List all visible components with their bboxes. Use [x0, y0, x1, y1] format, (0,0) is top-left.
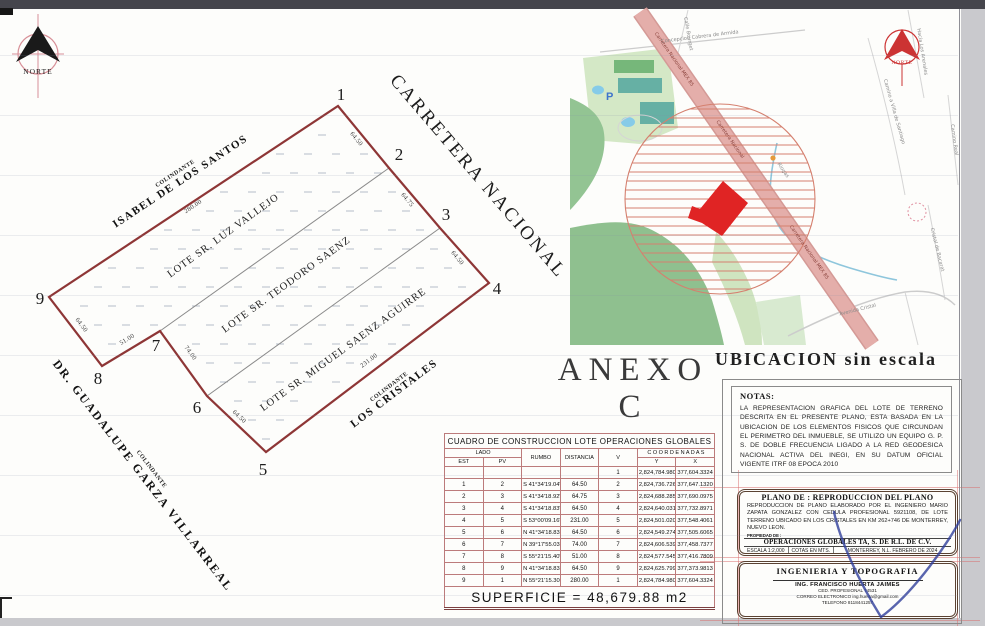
- table-cell-y: 2,824,625.7998: [637, 563, 676, 575]
- vertex-label: 7: [152, 336, 161, 355]
- table-cell-y: 2,824,784.9800: [637, 467, 676, 479]
- table-row: 91N 55°21'15.30" E280.0012,824,784.98003…: [445, 575, 715, 587]
- vertex-label: 4: [493, 279, 502, 298]
- north-label: NORTE: [891, 60, 912, 66]
- table-cell-rumbo: S 55°21'15.40" W: [522, 551, 561, 563]
- table-cell-est: 8: [445, 563, 484, 575]
- table-cell-x: 377,458.7377: [676, 539, 715, 551]
- col-rumbo: RUMBO: [522, 449, 561, 467]
- plan-scale: ESCALA 1:2,000: [744, 547, 788, 554]
- table-cell-pv: 2: [483, 479, 522, 491]
- vertex-label: 5: [259, 460, 268, 479]
- table-cell-v: 8: [599, 551, 638, 563]
- table-cell-est: 9: [445, 575, 484, 587]
- col-pv: PV: [483, 458, 522, 467]
- map-green-area: [570, 222, 724, 345]
- construction-table: CUADRO DE CONSTRUCCION LOTE OPERACIONES …: [444, 433, 715, 610]
- plan-description: REPRODUCCION DE PLANO ELABORADO POR EL I…: [740, 502, 955, 532]
- table-cell-pv: 8: [483, 551, 522, 563]
- map-north-arrow: NORTE: [884, 29, 920, 86]
- engineer-block: INGENIERIA Y TOPOGRAFIA ING. FRANCISCO H…: [737, 561, 958, 619]
- table-cell-pv: [483, 467, 522, 479]
- table-cell-v: 1: [599, 467, 638, 479]
- table-row: 12S 41°34'19.04" E64.5022,824,736.726137…: [445, 479, 715, 491]
- table-row: 89N 41°34'18.83" W64.5092,824,625.799837…: [445, 563, 715, 575]
- table-cell-y: 2,824,606.5393: [637, 539, 676, 551]
- table-cell-rumbo: N 39°17'55.03" W: [522, 539, 561, 551]
- table-cell-est: [445, 467, 484, 479]
- vertex-label: 9: [36, 289, 45, 308]
- north-label: NORTE: [23, 67, 53, 76]
- street-label: Cristal de Bacarat: [929, 227, 946, 272]
- table-cell-v: 4: [599, 503, 638, 515]
- table-cell-rumbo: S 41°34'18.92" E: [522, 491, 561, 503]
- location-map: P Concepcion Cabrera: [570, 10, 959, 345]
- table-row: 12,824,784.9800377,604.3324: [445, 467, 715, 479]
- vertex-label: 1: [337, 85, 346, 104]
- map-pool: [621, 117, 635, 127]
- map-creek: [770, 143, 897, 280]
- table-cell-x: 377,690.0975: [676, 491, 715, 503]
- table-cell-v: 3: [599, 491, 638, 503]
- table-cell-rumbo: N 41°34'18.83" W: [522, 563, 561, 575]
- col-distancia: DISTANCIA: [560, 449, 599, 467]
- table-row: 78S 55°21'15.40" W51.0082,824,577.545837…: [445, 551, 715, 563]
- table-cell-pv: 7: [483, 539, 522, 551]
- scanned-survey-sheet: P Concepcion Cabrera: [0, 0, 985, 626]
- map-street: [905, 292, 918, 345]
- table-row: 34S 41°34'18.83" E64.5042,824,640.031137…: [445, 503, 715, 515]
- table-cell-x: 377,604.3324: [676, 575, 715, 587]
- table-cell-dist: 64.50: [560, 527, 599, 539]
- table-row: 45S 53°00'09.16" W231.0052,824,501.02003…: [445, 515, 715, 527]
- table-cell-dist: 64.75: [560, 491, 599, 503]
- table-cell-dist: 64.50: [560, 563, 599, 575]
- map-court: [640, 102, 674, 124]
- map-avenue: [788, 291, 955, 336]
- parking-icon: P: [606, 91, 613, 103]
- table-cell-dist: 280.00: [560, 575, 599, 587]
- table-cell-v: 9: [599, 563, 638, 575]
- col-lado: LADO: [445, 449, 522, 458]
- table-cell-y: 2,824,688.2851: [637, 491, 676, 503]
- table-cell-rumbo: S 41°34'19.04" E: [522, 479, 561, 491]
- table-cell-dist: 74.00: [560, 539, 599, 551]
- engineer-block-title: INGENIERIA Y TOPOGRAFIA: [740, 566, 955, 576]
- construction-table-wrap: CUADRO DE CONSTRUCCION LOTE OPERACIONES …: [444, 433, 715, 610]
- street-label: Calle Bourget: [682, 17, 694, 51]
- plan-units: COTAS EN MTS.: [788, 547, 834, 554]
- map-court: [614, 60, 654, 73]
- table-title: CUADRO DE CONSTRUCCION LOTE OPERACIONES …: [445, 434, 715, 449]
- table-cell-y: 2,824,640.0311: [637, 503, 676, 515]
- signature-line: [773, 580, 923, 581]
- plan-title: PLANO DE : REPRODUCCION DEL PLANO: [740, 493, 955, 502]
- col-est: EST: [445, 458, 484, 467]
- map-green-area: [756, 295, 806, 345]
- plan-title-block: PLANO DE : REPRODUCCION DEL PLANO REPROD…: [737, 489, 958, 556]
- table-cell-v: 1: [599, 575, 638, 587]
- table-cell-x: 377,548.4061: [676, 515, 715, 527]
- table-cell-pv: 6: [483, 527, 522, 539]
- table-cell-x: 377,647.1320: [676, 479, 715, 491]
- table-cell-y: 2,824,501.0200: [637, 515, 676, 527]
- vertex-label: 2: [395, 145, 404, 164]
- street-label: Camino Real: [949, 124, 959, 156]
- table-cell-pv: 9: [483, 563, 522, 575]
- engineer-phone: TELEFONO 8118441257: [740, 600, 955, 606]
- table-cell-dist: [560, 467, 599, 479]
- street-label: Hacia Los Arenales: [915, 28, 928, 76]
- plan-meta-row: ESCALA 1:2,000 COTAS EN MTS. MONTERREY, …: [744, 547, 951, 554]
- table-cell-dist: 51.00: [560, 551, 599, 563]
- table-cell-v: 5: [599, 515, 638, 527]
- table-cell-est: 1: [445, 479, 484, 491]
- col-coordenadas: C O O R D E N A D A S: [637, 449, 714, 458]
- plan-owner: OPERACIONES GLOBALES TA, S. DE R.L. DE C…: [744, 538, 951, 547]
- notes-title: NOTAS:: [740, 391, 943, 401]
- table-cell-y: 2,824,784.9800: [637, 575, 676, 587]
- table-cell-est: 4: [445, 515, 484, 527]
- table-cell-rumbo: S 53°00'09.16" W: [522, 515, 561, 527]
- map-court: [618, 78, 662, 93]
- table-cell-pv: 1: [483, 575, 522, 587]
- col-y: Y: [637, 458, 676, 467]
- table-cell-y: 2,824,549.2740: [637, 527, 676, 539]
- table-row: 67N 39°17'55.03" W74.0072,824,606.539337…: [445, 539, 715, 551]
- table-cell-est: 7: [445, 551, 484, 563]
- map-dashed-parcel: [908, 203, 926, 221]
- col-v: V: [599, 449, 638, 467]
- table-cell-pv: 4: [483, 503, 522, 515]
- map-caption: UBICACION sin escala: [700, 349, 952, 370]
- table-cell-pv: 3: [483, 491, 522, 503]
- construction-table-body: 12,824,784.9800377,604.332412S 41°34'19.…: [445, 467, 715, 587]
- table-cell-pv: 5: [483, 515, 522, 527]
- table-cell-x: 377,416.7809: [676, 551, 715, 563]
- table-cell-est: 5: [445, 527, 484, 539]
- table-cell-rumbo: N 55°21'15.30" E: [522, 575, 561, 587]
- plan-place-date: MONTERREY, N.L. FEBRERO DE 2024: [833, 547, 951, 554]
- superficie-total: SUPERFICIE = 48,679.88 m2: [445, 587, 715, 609]
- table-cell-rumbo: N 41°34'18.83" W: [522, 527, 561, 539]
- street-label: Riogas: [776, 162, 791, 179]
- table-cell-est: 3: [445, 503, 484, 515]
- map-pool: [592, 86, 604, 95]
- table-row: 56N 41°34'18.83" W64.5062,824,549.274037…: [445, 527, 715, 539]
- table-cell-v: 7: [599, 539, 638, 551]
- vertex-label: 6: [193, 398, 202, 417]
- table-cell-est: 6: [445, 539, 484, 551]
- map-subject-lot: [688, 181, 748, 236]
- table-cell-x: 377,505.6065: [676, 527, 715, 539]
- table-cell-x: 377,373.9813: [676, 563, 715, 575]
- vertex-label: 8: [94, 369, 103, 388]
- table-cell-x: 377,604.3324: [676, 467, 715, 479]
- notes-body: LA REPRESENTACION GRAFICA DEL LOTE DE TE…: [740, 404, 943, 470]
- table-cell-y: 2,824,577.5458: [637, 551, 676, 563]
- table-cell-v: 6: [599, 527, 638, 539]
- table-cell-rumbo: S 41°34'18.83" E: [522, 503, 561, 515]
- notes-box: NOTAS: LA REPRESENTACION GRAFICA DEL LOT…: [731, 386, 952, 473]
- map-poi-marker: [770, 155, 775, 160]
- street-label: Camino a Villa de Santiago: [882, 79, 906, 145]
- table-cell-dist: 231.00: [560, 515, 599, 527]
- table-cell-rumbo: [522, 467, 561, 479]
- table-cell-dist: 64.50: [560, 503, 599, 515]
- street-label: Concepcion Cabrera de Armida: [661, 29, 739, 44]
- table-cell-est: 2: [445, 491, 484, 503]
- col-x: X: [676, 458, 715, 467]
- table-cell-dist: 64.50: [560, 479, 599, 491]
- sheet-north-arrow: NORTE: [12, 14, 64, 98]
- vertex-label: 3: [442, 205, 451, 224]
- table-cell-x: 377,732.8971: [676, 503, 715, 515]
- table-cell-v: 2: [599, 479, 638, 491]
- table-cell-y: 2,824,736.7261: [637, 479, 676, 491]
- table-row: 23S 41°34'18.92" E64.7532,824,688.285137…: [445, 491, 715, 503]
